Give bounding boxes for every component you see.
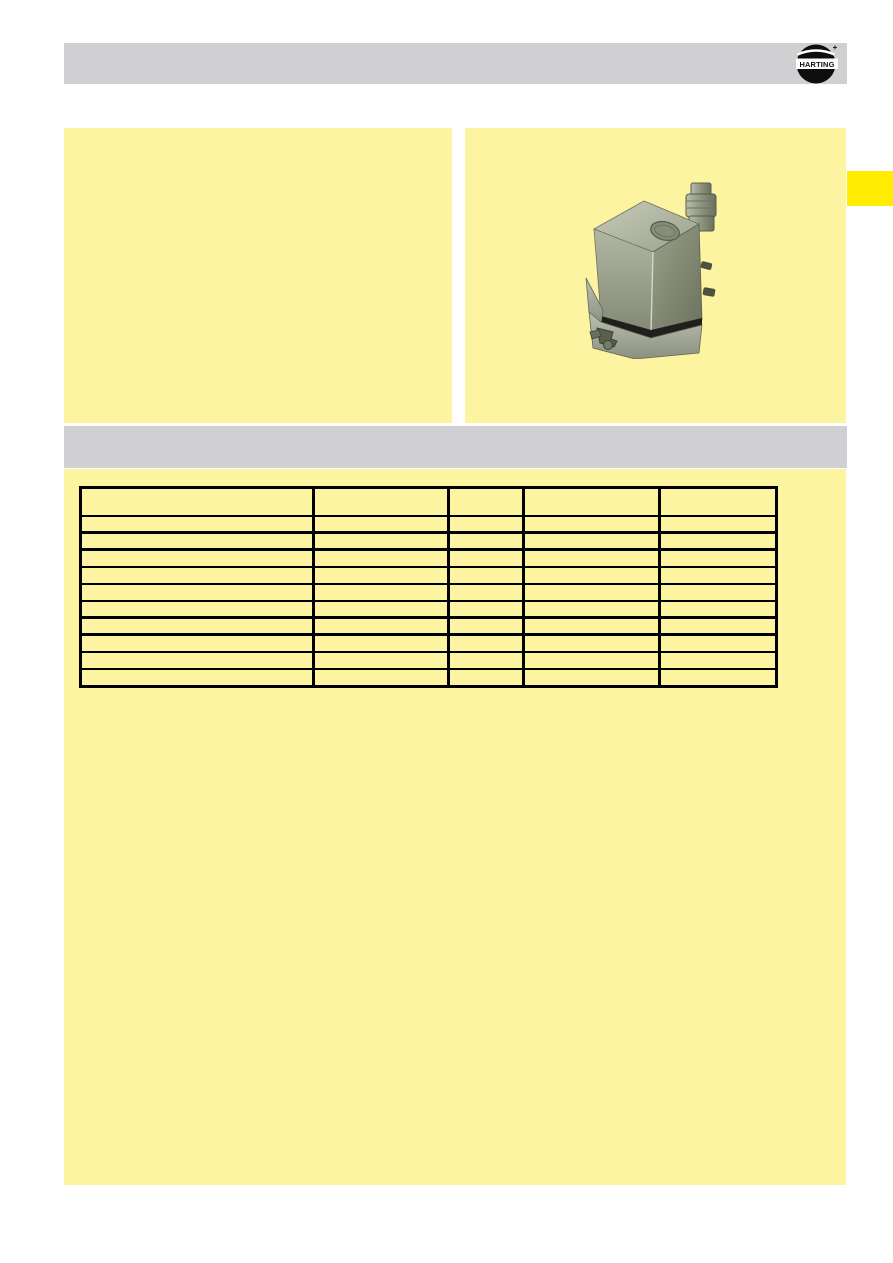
- table-cell: [81, 635, 314, 653]
- table-cell: [660, 635, 777, 653]
- clamp-screw: [604, 341, 613, 350]
- table-cell: [314, 533, 449, 550]
- page-edge-tab: [847, 171, 893, 206]
- table-cell: [524, 652, 660, 669]
- table-header-cell: [81, 488, 314, 517]
- catalog-page: HARTING +: [0, 0, 893, 1263]
- table-cell: [314, 618, 449, 635]
- table-header-cell: [660, 488, 777, 517]
- table-row: [81, 618, 777, 635]
- table-cell: [660, 567, 777, 584]
- table-cell: [524, 550, 660, 568]
- table-header-cell: [449, 488, 524, 517]
- table-cell: [524, 618, 660, 635]
- table-row: [81, 584, 777, 601]
- table-cell: [81, 601, 314, 618]
- table-cell: [660, 516, 777, 533]
- table-cell: [660, 669, 777, 687]
- logo-wordmark: HARTING: [799, 60, 834, 69]
- table-cell: [524, 567, 660, 584]
- table-cell: [660, 618, 777, 635]
- table-row: [81, 567, 777, 584]
- table-cell: [81, 567, 314, 584]
- description-panel: [64, 128, 452, 423]
- table-row: [81, 635, 777, 653]
- table-cell: [81, 550, 314, 568]
- table-header: [81, 488, 777, 517]
- table-row: [81, 669, 777, 687]
- table-cell: [449, 550, 524, 568]
- table-cell: [81, 669, 314, 687]
- table-cell: [524, 516, 660, 533]
- table-cell: [449, 584, 524, 601]
- table-cell: [81, 652, 314, 669]
- harting-logo-icon: HARTING +: [796, 44, 838, 84]
- table-cell: [81, 516, 314, 533]
- table-cell: [660, 652, 777, 669]
- table-cell: [524, 669, 660, 687]
- table-cell: [449, 533, 524, 550]
- table-body: [81, 516, 777, 687]
- locking-pin-upper: [700, 261, 712, 270]
- connector-hood-photo: [577, 182, 719, 359]
- selection-table: [79, 486, 778, 688]
- table-cell: [524, 584, 660, 601]
- table-cell: [660, 584, 777, 601]
- locking-pin-lower: [702, 287, 715, 297]
- table-row: [81, 516, 777, 533]
- table-cell: [314, 567, 449, 584]
- product-image-panel: [465, 128, 846, 423]
- table-cell: [449, 652, 524, 669]
- table-cell: [524, 533, 660, 550]
- table-header-cell: [314, 488, 449, 517]
- table-row: [81, 601, 777, 618]
- table-header-row: [81, 488, 777, 517]
- table-cell: [314, 584, 449, 601]
- table-cell: [314, 635, 449, 653]
- table-header-cell: [524, 488, 660, 517]
- table-cell: [524, 635, 660, 653]
- table-cell: [314, 516, 449, 533]
- table-cell: [449, 669, 524, 687]
- table-row: [81, 533, 777, 550]
- table-cell: [314, 652, 449, 669]
- table-cell: [81, 618, 314, 635]
- table-cell: [314, 550, 449, 568]
- table-cell: [449, 567, 524, 584]
- table-cell: [314, 601, 449, 618]
- table-cell: [81, 533, 314, 550]
- section-header-bar: [64, 426, 847, 468]
- table-cell: [660, 533, 777, 550]
- table-row: [81, 550, 777, 568]
- table-cell: [449, 516, 524, 533]
- table-cell: [524, 601, 660, 618]
- table-cell: [660, 550, 777, 568]
- content-area: [64, 469, 846, 1185]
- table-cell: [449, 635, 524, 653]
- table-cell: [660, 601, 777, 618]
- page-header-bar: HARTING +: [64, 43, 847, 84]
- table-row: [81, 652, 777, 669]
- table-cell: [449, 601, 524, 618]
- logo-plus-mark: +: [833, 44, 838, 52]
- table-cell: [449, 618, 524, 635]
- table-cell: [314, 669, 449, 687]
- table-cell: [81, 584, 314, 601]
